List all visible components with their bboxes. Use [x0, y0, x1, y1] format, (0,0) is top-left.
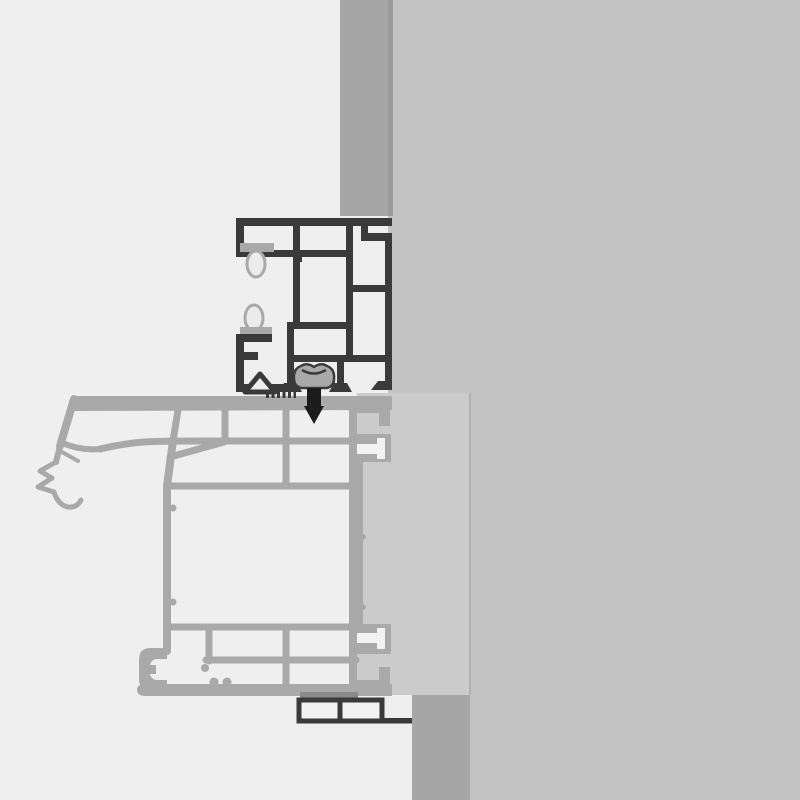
reveal-notch — [388, 695, 412, 800]
dark-nub — [295, 257, 302, 262]
wall-nub-2 — [170, 599, 177, 606]
joint-nub-2 — [360, 604, 366, 610]
sill-connector-extension — [384, 718, 412, 724]
hook-arm — [357, 403, 390, 413]
port-slot-stem — [357, 633, 380, 643]
wall-nub-1 — [170, 505, 177, 512]
screw-shank — [307, 388, 321, 407]
joint-nub-1 — [360, 534, 366, 540]
anchor-port-lower — [355, 624, 391, 654]
dark-shelf-2 — [287, 322, 353, 329]
anchor-port-upper — [355, 434, 391, 462]
render-strip-top-edge — [388, 0, 393, 216]
port-slot-stem — [357, 444, 380, 454]
hook-lip — [379, 412, 390, 426]
render-strip-bottom — [412, 695, 470, 800]
clip-nub — [148, 665, 156, 674]
dark-top-bar — [236, 218, 392, 226]
hook-arm — [357, 680, 390, 691]
dark-mid-vertical — [346, 226, 353, 362]
dark-tab — [243, 352, 258, 360]
dark-shelf-3 — [287, 355, 392, 362]
screw-head — [294, 364, 334, 388]
render-strip-top — [340, 0, 390, 216]
gasket-bulb-upper — [247, 251, 265, 277]
port-slot-cap — [377, 438, 385, 459]
dark-right-divider — [349, 285, 392, 292]
divider-nub — [201, 664, 209, 672]
dark-divider-1 — [293, 226, 300, 329]
insulation-panel-edge — [469, 393, 471, 695]
hook-lip — [379, 667, 390, 682]
seal-tape — [300, 692, 358, 698]
grey-profile-top-bar — [71, 396, 392, 411]
gasket-holder-upper — [240, 243, 274, 252]
panel-joint-line — [357, 462, 363, 625]
web-v1a — [173, 410, 178, 441]
dark-left-wall-lower — [236, 334, 244, 392]
technical-drawing-canvas — [0, 0, 800, 800]
port-slot-cap — [377, 628, 385, 649]
